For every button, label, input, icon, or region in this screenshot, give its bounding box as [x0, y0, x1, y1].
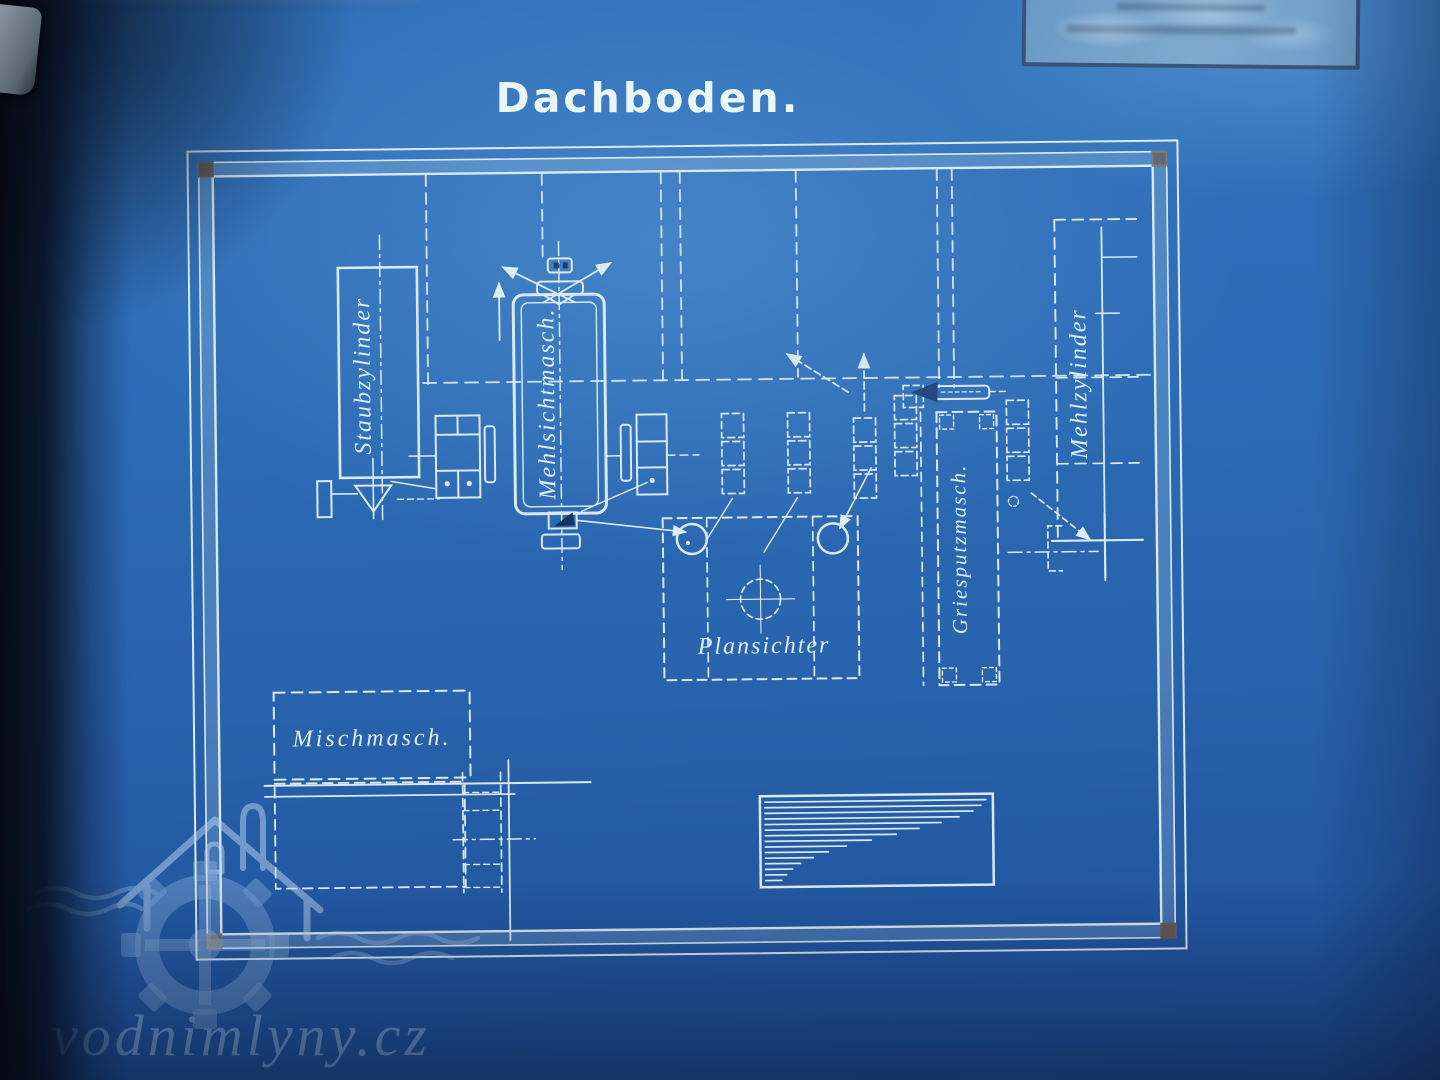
main-axis-dashed-line: [423, 375, 1153, 383]
page-title: Dachboden.: [496, 74, 801, 122]
stamp-smudge: [1066, 25, 1296, 35]
spout-columns: [721, 352, 918, 499]
griesputzmasch-machine: Griesputzmasch.: [920, 412, 999, 686]
griesputz-feed-assembly: [903, 384, 1008, 407]
right-drive-box: [605, 414, 699, 495]
left-drive-box: [408, 415, 495, 498]
plansichter-machine: Plansichter: [662, 468, 873, 680]
mischmasch-label: Mischmasch.: [291, 725, 451, 753]
staircase: [760, 794, 994, 888]
mehlzylinder-machine: Mehlzylinder: [1004, 219, 1143, 582]
photo-right-shadow: [1300, 0, 1440, 1080]
ceiling-drop-lines: [426, 169, 954, 393]
photo-left-edge: [0, 0, 130, 1080]
mehlsichtmasch-label: Mehlsichtmasch.: [533, 307, 561, 500]
stamp-smudge: [1116, 3, 1266, 12]
plansichter-label: Plansichter: [697, 632, 831, 660]
right-spout-column: [1006, 400, 1029, 506]
griesputzmasch-label: Griesputzmasch.: [946, 464, 972, 635]
photo-bottom-shadow: [0, 880, 1440, 1080]
mehlzylinder-label: Mehlzylinder: [1065, 308, 1093, 460]
mehlsichtmasch-machine: Mehlsichtmasch.: [498, 240, 686, 570]
mischmasch-machine: Mischmasch.: [274, 691, 471, 780]
blueprint-photo: Dachboden.: [0, 0, 1440, 1080]
